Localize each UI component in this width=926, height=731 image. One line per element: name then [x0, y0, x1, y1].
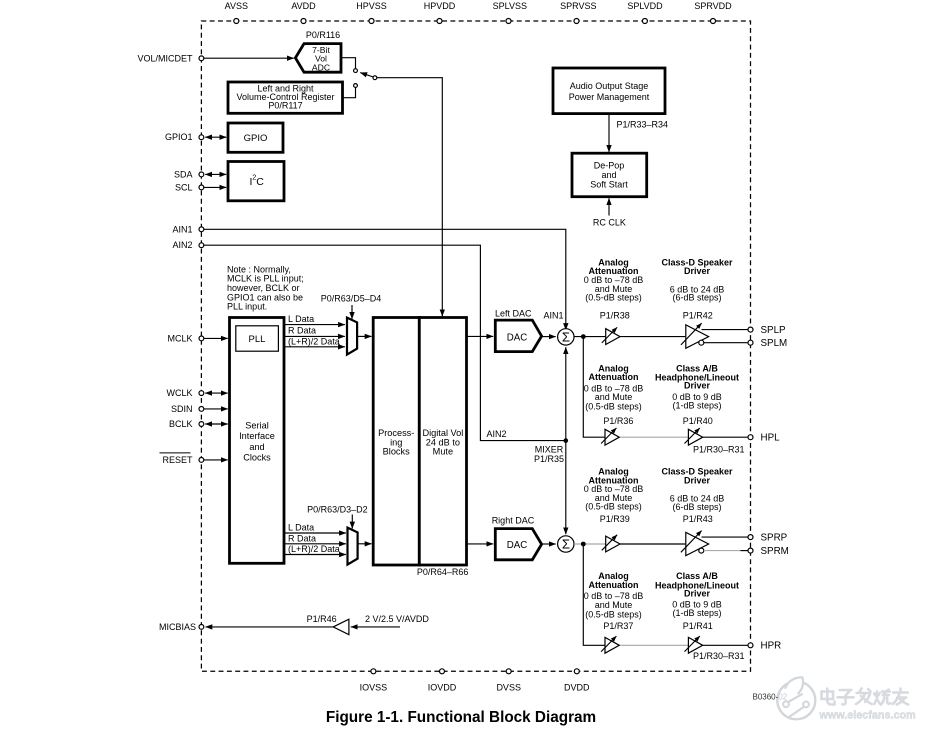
svg-text:C: C — [256, 176, 264, 188]
svg-text:SPRM: SPRM — [761, 546, 789, 557]
svg-text:WCLK: WCLK — [166, 388, 192, 398]
svg-text:Σ: Σ — [562, 330, 570, 345]
svg-text:(6-dB steps): (6-dB steps) — [672, 502, 721, 512]
svg-text:Left DAC: Left DAC — [495, 308, 532, 318]
svg-text:AIN1: AIN1 — [172, 224, 192, 234]
svg-text:SPLM: SPLM — [761, 338, 788, 349]
svg-text:(0.5-dB steps): (0.5-dB steps) — [585, 609, 642, 619]
svg-text:GPIO: GPIO — [244, 133, 268, 144]
svg-text:RESET: RESET — [162, 455, 193, 465]
svg-text:VOL/MICDET: VOL/MICDET — [137, 53, 193, 63]
svg-text:Mute: Mute — [433, 447, 453, 457]
svg-text:MCLK: MCLK — [167, 333, 192, 343]
svg-text:MICBIAS: MICBIAS — [159, 622, 196, 632]
svg-text:Power Management: Power Management — [569, 92, 650, 102]
svg-text:P1/R35: P1/R35 — [534, 454, 564, 464]
svg-text:P1/R36: P1/R36 — [603, 416, 633, 426]
svg-text:RC CLK: RC CLK — [593, 217, 626, 227]
svg-text:AIN2: AIN2 — [172, 240, 192, 250]
svg-text:(0.5-dB steps): (0.5-dB steps) — [585, 293, 642, 303]
svg-text:PLL input.: PLL input. — [227, 302, 267, 312]
svg-text:P1/R30–R31: P1/R30–R31 — [693, 445, 745, 455]
svg-text:Interface: Interface — [239, 431, 275, 441]
svg-text:HPVDD: HPVDD — [424, 1, 456, 11]
svg-text:Audio Output Stage: Audio Output Stage — [570, 81, 649, 91]
svg-text:P0/R116: P0/R116 — [306, 30, 340, 40]
svg-text:GPIO1: GPIO1 — [165, 132, 193, 142]
svg-text:SDA: SDA — [174, 169, 193, 179]
svg-text:MIXER: MIXER — [535, 444, 564, 454]
svg-text:P0/R117: P0/R117 — [268, 101, 302, 111]
svg-text:SPRP: SPRP — [761, 533, 788, 544]
svg-text:Driver: Driver — [684, 381, 711, 391]
svg-text:SPRVSS: SPRVSS — [560, 1, 596, 11]
svg-text:(1-dB steps): (1-dB steps) — [672, 608, 721, 618]
svg-text:DVSS: DVSS — [496, 683, 521, 693]
svg-text:Right DAC: Right DAC — [492, 516, 535, 526]
svg-text:Clocks: Clocks — [243, 452, 271, 462]
svg-text:P1/R30–R31: P1/R30–R31 — [693, 651, 745, 661]
svg-text:P1/R46: P1/R46 — [307, 614, 337, 624]
svg-text:BCLK: BCLK — [169, 419, 193, 429]
svg-text:P1/R41: P1/R41 — [683, 621, 713, 631]
svg-text:www.elecfans.com: www.elecfans.com — [819, 710, 916, 722]
svg-text:R Data: R Data — [288, 533, 316, 543]
svg-text:P0/R64–R66: P0/R64–R66 — [417, 567, 469, 577]
svg-text:(6-dB steps): (6-dB steps) — [672, 293, 721, 303]
svg-text:P1/R42: P1/R42 — [683, 311, 713, 321]
svg-text:Attenuation: Attenuation — [589, 580, 639, 590]
svg-text:HPL: HPL — [761, 433, 781, 444]
svg-text:2 V/2.5 V/AVDD: 2 V/2.5 V/AVDD — [365, 614, 429, 624]
svg-text:AIN1: AIN1 — [544, 311, 564, 321]
svg-text:SCL: SCL — [175, 182, 193, 192]
svg-text:(L+R)/2 Data: (L+R)/2 Data — [288, 337, 340, 347]
svg-text:Attenuation: Attenuation — [589, 372, 639, 382]
svg-text:IOVDD: IOVDD — [428, 683, 457, 693]
svg-text:SPLVSS: SPLVSS — [493, 1, 527, 11]
svg-text:(0.5-dB steps): (0.5-dB steps) — [585, 502, 642, 512]
svg-text:AVDD: AVDD — [291, 1, 316, 11]
svg-text:DAC: DAC — [507, 540, 527, 551]
svg-text:P0/R63/D5–D4: P0/R63/D5–D4 — [321, 294, 382, 304]
svg-text:Driver: Driver — [684, 475, 711, 485]
svg-text:HPR: HPR — [761, 641, 782, 652]
svg-text:P1/R43: P1/R43 — [683, 514, 713, 524]
svg-text:L Data: L Data — [288, 523, 314, 533]
svg-text:Driver: Driver — [684, 588, 711, 598]
svg-text:ADC: ADC — [312, 63, 330, 73]
svg-text:SPLP: SPLP — [761, 325, 787, 336]
svg-text:P1/R40: P1/R40 — [683, 416, 713, 426]
svg-text:Driver: Driver — [684, 266, 711, 276]
svg-text:(1-dB steps): (1-dB steps) — [672, 400, 721, 410]
svg-text:SPLVDD: SPLVDD — [627, 1, 663, 11]
svg-text:P1/R33–R34: P1/R33–R34 — [617, 119, 669, 129]
svg-text:AIN2: AIN2 — [487, 429, 507, 439]
svg-text:P1/R39: P1/R39 — [600, 514, 630, 524]
svg-text:SPRVDD: SPRVDD — [694, 1, 732, 11]
svg-text:PLL: PLL — [249, 334, 266, 345]
svg-text:Σ: Σ — [562, 537, 570, 552]
svg-text:DAC: DAC — [507, 332, 527, 343]
svg-text:Serial: Serial — [245, 421, 269, 431]
svg-text:HPVSS: HPVSS — [356, 1, 387, 11]
svg-text:P0/R63/D3–D2: P0/R63/D3–D2 — [307, 505, 368, 515]
svg-text:P1/R38: P1/R38 — [600, 311, 630, 321]
svg-text:SDIN: SDIN — [171, 404, 193, 414]
svg-text:R Data: R Data — [288, 326, 316, 336]
svg-text:(L+R)/2 Data: (L+R)/2 Data — [288, 544, 340, 554]
svg-text:IOVSS: IOVSS — [360, 683, 388, 693]
svg-text:B0360-02: B0360-02 — [753, 693, 788, 702]
svg-text:and: and — [249, 442, 264, 452]
svg-text:Figure 1-1. Functional Block D: Figure 1-1. Functional Block Diagram — [326, 709, 596, 726]
svg-text:L Data: L Data — [288, 314, 314, 324]
svg-text:Soft Start: Soft Start — [590, 179, 628, 189]
svg-text:Blocks: Blocks — [383, 447, 410, 457]
svg-text:P1/R37: P1/R37 — [603, 621, 633, 631]
svg-text:DVDD: DVDD — [564, 683, 590, 693]
svg-text:(0.5-dB steps): (0.5-dB steps) — [585, 402, 642, 412]
svg-text:AVSS: AVSS — [225, 1, 248, 11]
